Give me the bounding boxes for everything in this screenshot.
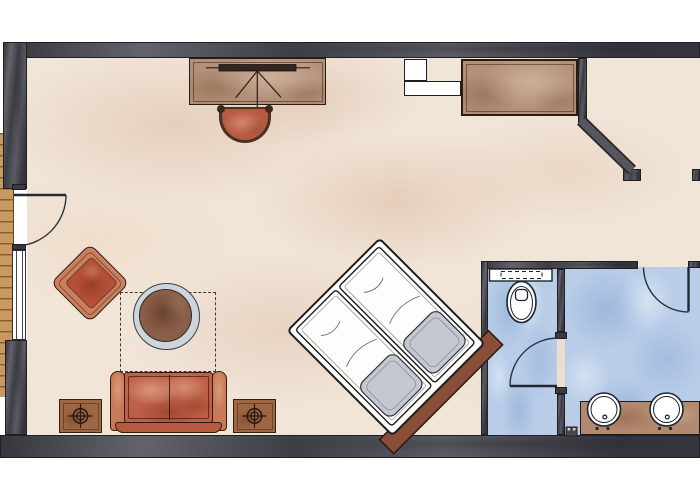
balcony-door-jamb-top xyxy=(12,184,26,190)
window xyxy=(12,250,26,340)
wc-floor xyxy=(488,269,557,435)
wall-entry-cap xyxy=(623,169,641,181)
desk-chair-seat xyxy=(219,107,271,143)
coffee-table xyxy=(133,283,200,350)
wall-left-lower xyxy=(5,340,27,435)
sofa-seat xyxy=(124,372,213,423)
side-table-left xyxy=(59,399,102,433)
wardrobe-inner-line xyxy=(466,64,574,112)
sofa-cushion-divider xyxy=(169,375,170,420)
side-table-right-inner xyxy=(237,403,273,430)
sofa xyxy=(110,369,227,433)
wall-bath-top xyxy=(481,261,638,269)
wall-top xyxy=(3,42,700,58)
wall-bottom xyxy=(0,435,700,458)
desk xyxy=(189,58,326,105)
desk-chair-knob-right xyxy=(265,105,273,113)
wall-left-upper xyxy=(3,42,27,189)
vanity-counter xyxy=(580,401,700,435)
wall-entry-stub-right xyxy=(692,169,700,181)
coffee-table-top xyxy=(139,289,192,342)
wall-wc-left xyxy=(481,261,488,435)
armchair-cushion xyxy=(65,256,119,310)
desk-chair xyxy=(219,107,271,143)
side-table-left-inner xyxy=(63,403,99,430)
floor-plan xyxy=(0,0,700,500)
desk-inner-line xyxy=(193,62,323,102)
wc-door-jamb-top xyxy=(555,332,567,339)
luggage-rack-lower xyxy=(404,81,461,96)
wc-door-jamb-bottom xyxy=(555,387,567,394)
desk-chair-knob-left xyxy=(217,105,225,113)
balcony-door-jamb-bottom xyxy=(12,244,26,250)
side-table-right xyxy=(233,399,276,433)
luggage-rack-upper xyxy=(404,59,427,81)
wall-wc-divider-lower xyxy=(557,394,565,435)
wall-wc-divider-upper xyxy=(557,269,565,332)
sofa-back xyxy=(115,422,222,433)
wardrobe xyxy=(461,59,578,116)
wall-bath-top-stub xyxy=(688,261,700,268)
wall-entry-vertical xyxy=(578,58,587,124)
